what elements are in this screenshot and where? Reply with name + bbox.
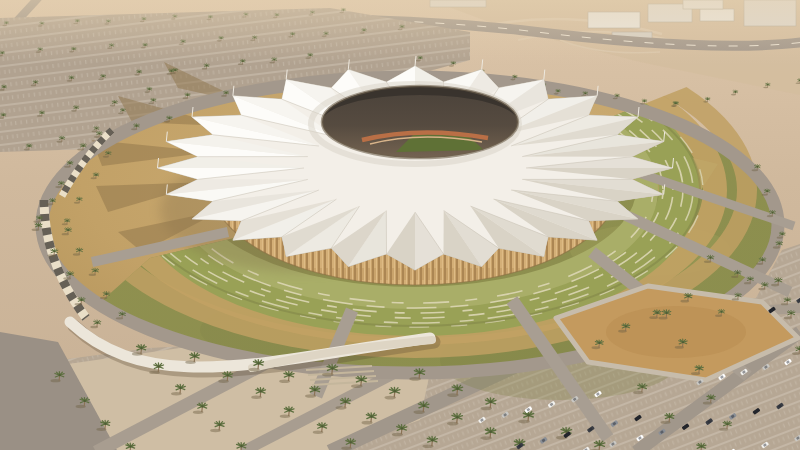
stadium-aerial-scene: Aerial architectural rendering of a dese… [0,0,800,450]
roof-opening [311,84,519,164]
atmospheric-haze [0,0,800,64]
sand-plot-mottle [606,306,746,358]
aerial-render: Aerial architectural rendering of a dese… [0,0,800,450]
